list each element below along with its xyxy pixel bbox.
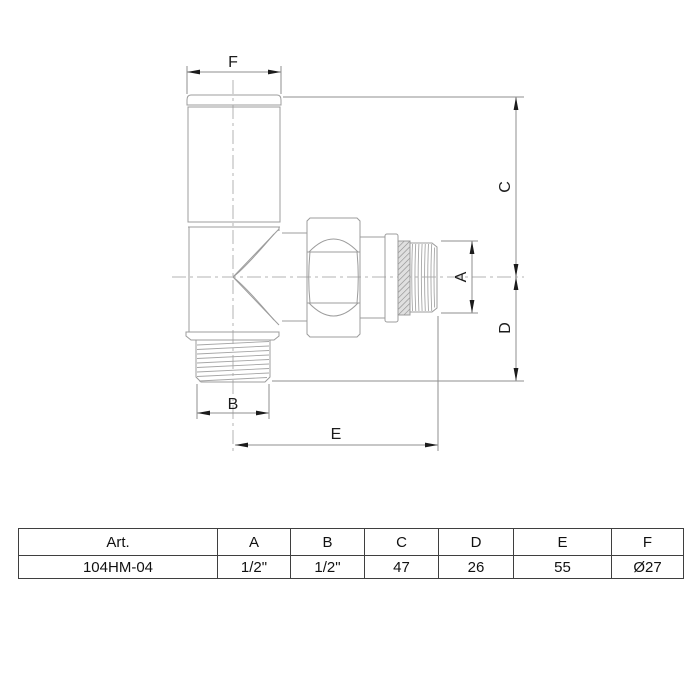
spec-table: Art. A B C D E F 104HM-04 1/2" 1/2" 47 2… [18,528,684,579]
dim-label-e: E [331,426,342,443]
dim-label-a: A [453,271,470,282]
arrow-a-bottom [470,300,475,313]
dim-label-b: B [228,396,239,413]
dim-label-d: D [497,322,514,334]
arrow-c-bottom [514,264,519,277]
valve-technical-drawing: F C A D B E [0,0,700,520]
table-header-art: Art. [19,529,218,556]
table-cell-e: 55 [514,556,612,579]
arrow-b-left [197,411,210,416]
table-cell-f: Ø27 [612,556,684,579]
washer-hatching [398,241,410,315]
bottom-thread-lines [197,342,269,382]
valve-cap [188,107,280,222]
table-header-e: E [514,529,612,556]
table-cell-a: 1/2" [218,556,291,579]
valve-flange [385,234,398,322]
table-cell-c: 47 [365,556,439,579]
arrow-d-bottom [514,368,519,381]
dimension-lines [187,66,524,451]
centerlines [172,80,524,451]
valve-body [186,95,437,382]
spec-table-value-row: 104HM-04 1/2" 1/2" 47 26 55 Ø27 [19,556,684,579]
page: F C A D B E Art. A B C D E F 104HM-04 1/… [0,0,700,700]
arrow-c-top [514,97,519,110]
table-header-d: D [439,529,514,556]
arrow-d-top [514,277,519,290]
table-cell-b: 1/2" [291,556,365,579]
table-cell-d: 26 [439,556,514,579]
arrow-b-right [256,411,269,416]
dim-label-f: F [228,54,238,71]
arrow-a-top [470,241,475,254]
table-cell-art: 104HM-04 [19,556,218,579]
table-header-f: F [612,529,684,556]
valve-cap-rim [187,95,281,105]
spec-table-header-row: Art. A B C D E F [19,529,684,556]
arrow-e-right [425,443,438,448]
dimension-arrowheads [187,70,518,448]
table-header-c: C [365,529,439,556]
arrow-f-right [268,70,281,75]
arrow-f-left [187,70,200,75]
table-header-a: A [218,529,291,556]
arrow-e-left [235,443,248,448]
dim-label-c: C [497,181,514,193]
table-header-b: B [291,529,365,556]
